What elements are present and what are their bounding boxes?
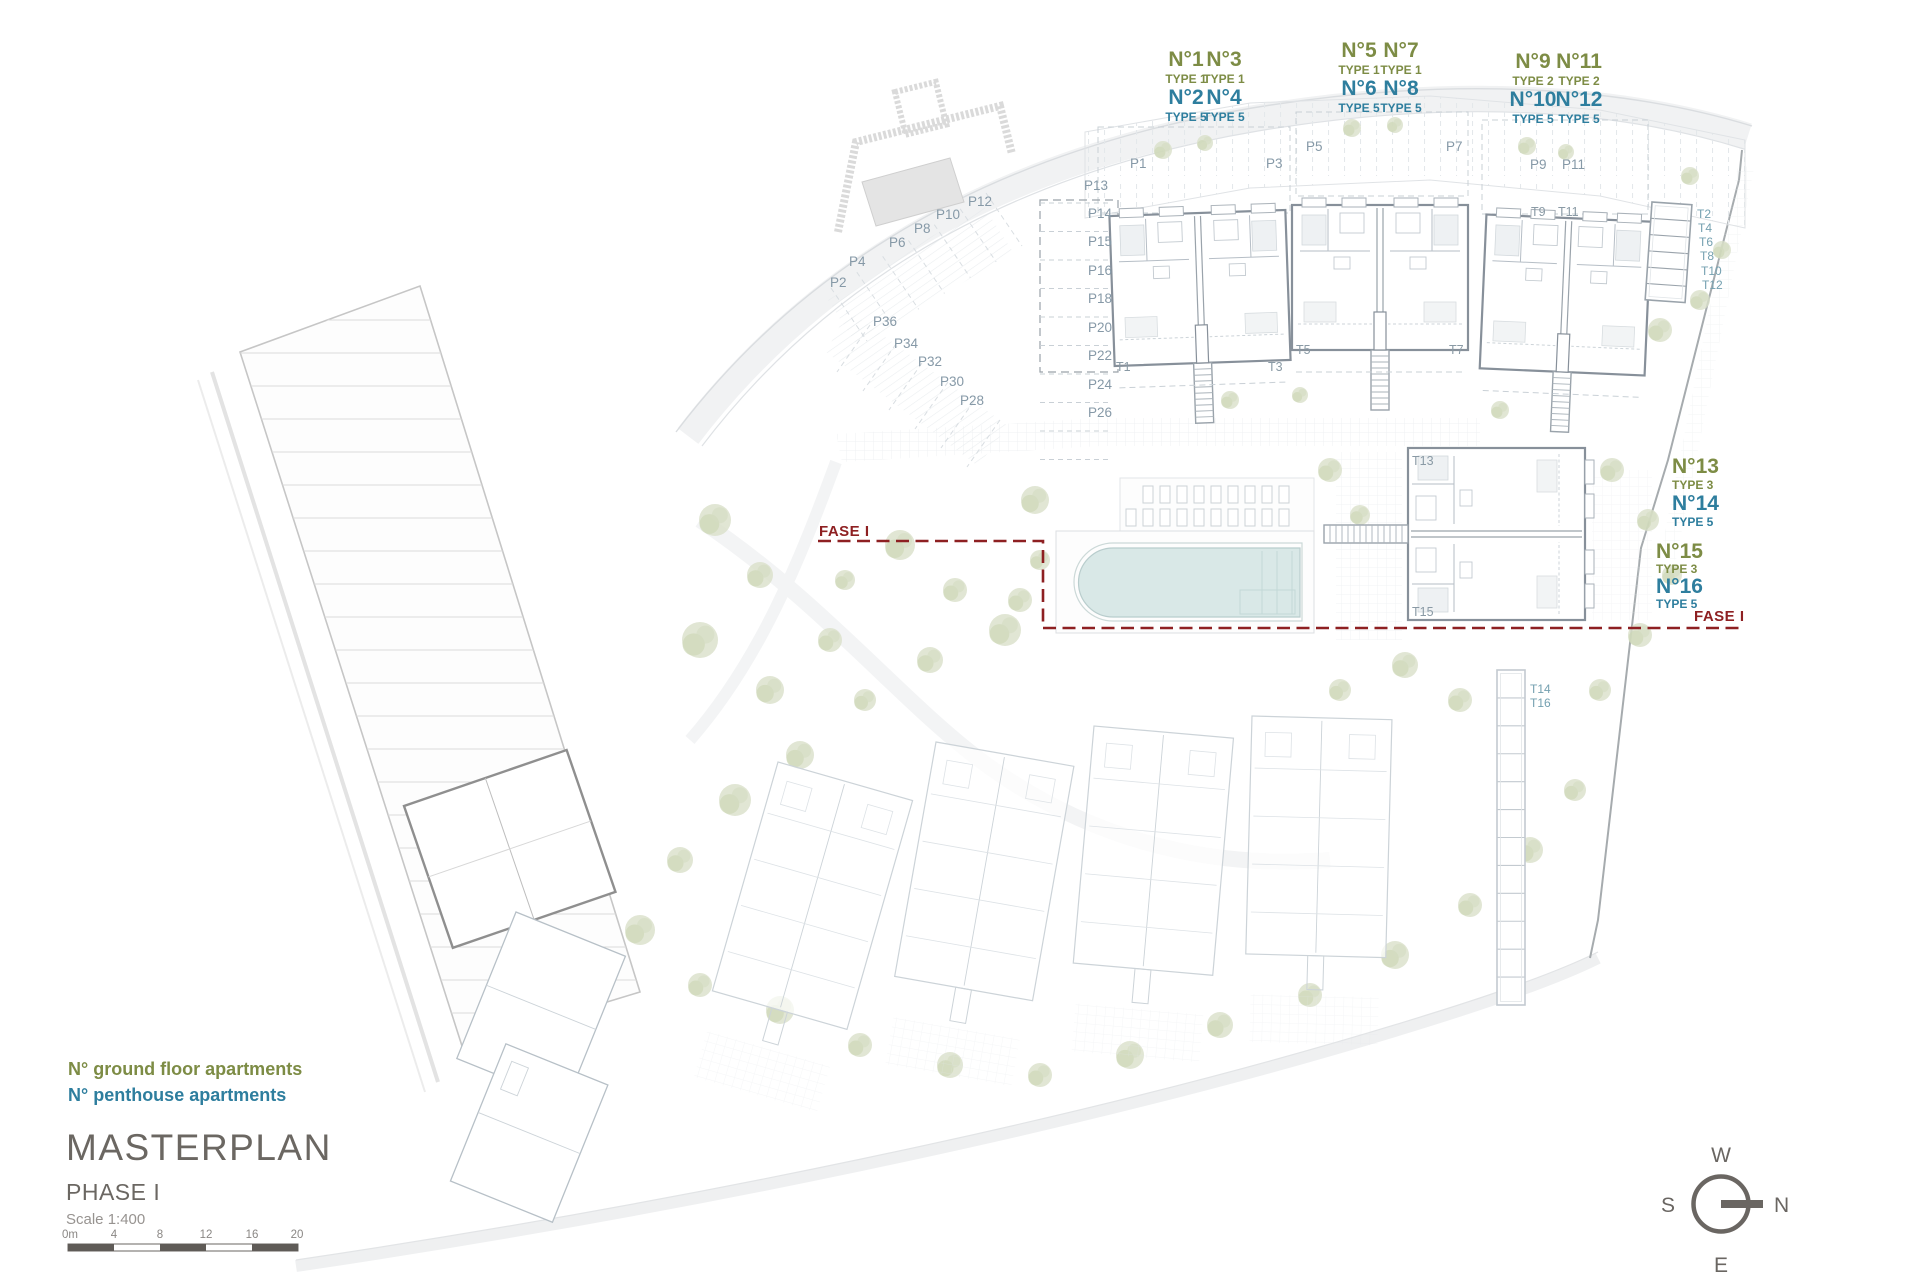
apartment-no: N°15 <box>1656 540 1703 563</box>
label-p15: P15 <box>1088 234 1112 249</box>
tree <box>1028 1063 1052 1087</box>
label-p32: P32 <box>918 354 942 369</box>
label-t6: T6 <box>1699 235 1713 249</box>
tree <box>1681 167 1699 185</box>
label-t14: T14 <box>1530 682 1551 696</box>
sun-lounger <box>1160 509 1170 526</box>
label-p20: P20 <box>1088 320 1112 335</box>
apartment-type: TYPE 2 <box>1512 74 1554 88</box>
sun-lounger <box>1245 509 1255 526</box>
pool-area <box>1056 478 1314 633</box>
label-t12: T12 <box>1702 278 1723 292</box>
legend-penthouse: N° penthouse apartments <box>68 1085 286 1105</box>
balcony <box>1251 203 1275 213</box>
scale-tick-8: 8 <box>157 1229 163 1241</box>
sun-lounger <box>1228 486 1238 503</box>
apartment-no: N°1 <box>1168 48 1204 71</box>
apartment-no: N°3 <box>1206 48 1241 71</box>
balcony <box>1583 212 1607 222</box>
label-t16: T16 <box>1530 696 1551 710</box>
label-p4: P4 <box>849 254 866 269</box>
sun-lounger <box>1160 486 1170 503</box>
apartment-no: N°6 <box>1341 77 1376 100</box>
balcony <box>1119 208 1143 218</box>
apartment-type: TYPE 1 <box>1338 63 1380 77</box>
phase1-building-2 <box>1292 198 1468 410</box>
tree <box>1600 458 1624 482</box>
existing-buildings-left <box>190 82 1012 1046</box>
label-t3: T3 <box>1268 360 1283 374</box>
label-p7: P7 <box>1446 139 1463 154</box>
scale-tick-0: 0m <box>62 1229 78 1241</box>
phase2-building <box>1243 716 1391 1046</box>
label-p13: P13 <box>1084 178 1108 193</box>
label-t10: T10 <box>1701 264 1722 278</box>
apartment-type: TYPE 3 <box>1672 478 1714 492</box>
balcony <box>1434 198 1458 207</box>
balcony <box>1585 550 1594 574</box>
tree <box>1021 486 1049 514</box>
label-p5: P5 <box>1306 139 1323 154</box>
label-p34: P34 <box>894 336 919 351</box>
tree <box>1318 458 1342 482</box>
sun-lounger <box>1262 486 1272 503</box>
tree <box>1221 391 1239 409</box>
balcony <box>1496 208 1520 218</box>
label-p26: P26 <box>1088 405 1112 420</box>
label-t7: T7 <box>1449 343 1464 357</box>
masterplan-canvas: FASE I FASE I P1 P3 P5 P7 P9 P11 P13 P14… <box>0 0 1920 1280</box>
balcony <box>1585 460 1594 484</box>
terrace-grid-right <box>1592 470 1652 620</box>
scale-bar-segment <box>252 1244 298 1251</box>
apartment-type: TYPE 5 <box>1165 110 1207 124</box>
label-p14: P14 <box>1088 206 1113 221</box>
tree <box>1564 779 1586 801</box>
phase2-building <box>688 762 912 1114</box>
stair-tower <box>1324 525 1408 543</box>
existing-small-structure <box>895 82 946 135</box>
label-t4: T4 <box>1698 221 1712 235</box>
apartment-no: N°8 <box>1383 77 1419 100</box>
sun-lounger <box>1177 486 1187 503</box>
label-p1: P1 <box>1130 156 1147 171</box>
tree <box>1387 117 1403 133</box>
label-p12: P12 <box>968 194 992 209</box>
apartment-type: TYPE 1 <box>1165 72 1207 86</box>
apartment-type: TYPE 1 <box>1380 63 1422 77</box>
label-p6: P6 <box>889 235 906 250</box>
tree <box>1637 509 1659 531</box>
tree <box>1491 401 1509 419</box>
label-p2: P2 <box>830 275 847 290</box>
label-p24: P24 <box>1088 377 1113 392</box>
scale-bar-segment <box>68 1244 114 1251</box>
tree <box>1343 119 1361 137</box>
compass-needle <box>1721 1200 1763 1208</box>
scale-tick-12: 12 <box>200 1229 213 1241</box>
sun-lounger <box>1245 486 1255 503</box>
apartment-type: TYPE 2 <box>1558 74 1600 88</box>
sun-lounger <box>1143 509 1153 526</box>
tree <box>818 628 842 652</box>
scale-bar: 0m 4 8 12 16 20 <box>62 1229 303 1251</box>
fase-label-left: FASE I <box>819 523 870 540</box>
storage-rack <box>1497 670 1525 1005</box>
sun-lounger <box>1177 509 1187 526</box>
fase-label-right: FASE I <box>1694 608 1745 625</box>
tree <box>1350 505 1370 525</box>
parking-column-zone <box>1040 200 1118 372</box>
apartment-no: N°10 <box>1510 88 1557 111</box>
tree <box>1448 688 1472 712</box>
balcony <box>1302 198 1326 207</box>
apartment-type: TYPE 5 <box>1380 101 1422 115</box>
sun-lounger <box>1143 486 1153 503</box>
tree <box>756 676 784 704</box>
tree <box>1392 652 1418 678</box>
tree <box>1030 550 1050 570</box>
tree <box>719 784 751 816</box>
apartment-labels-building-4-lower: N°15 TYPE 3 N°16 TYPE 5 <box>1656 540 1703 611</box>
apartment-no: N°9 <box>1515 50 1550 73</box>
compass: W N E S <box>1661 1144 1789 1277</box>
label-t2: T2 <box>1697 207 1711 221</box>
apartment-type: TYPE 5 <box>1558 112 1600 126</box>
tree <box>667 847 693 873</box>
tree <box>1008 588 1032 612</box>
sun-lounger <box>1279 486 1289 503</box>
apartment-type: TYPE 5 <box>1338 101 1380 115</box>
apartment-type: TYPE 5 <box>1656 597 1698 611</box>
tree <box>1648 318 1672 342</box>
page-title: MASTERPLAN <box>66 1127 332 1168</box>
apartment-type: TYPE 3 <box>1656 562 1698 576</box>
apartment-labels-building-1: N°1 N°3 TYPE 1 TYPE 1 N°2 N°4 TYPE 5 TYP… <box>1165 48 1245 124</box>
compass-west: W <box>1711 1144 1731 1167</box>
plaza-right-of-pool <box>1336 452 1402 640</box>
balcony <box>1211 205 1235 215</box>
apartment-labels-building-4-upper: N°13 TYPE 3 N°14 TYPE 5 <box>1672 455 1719 529</box>
apartment-no: N°13 <box>1672 455 1719 478</box>
balcony <box>1159 207 1183 217</box>
compass-east: E <box>1714 1254 1728 1277</box>
existing-slab-outline <box>240 286 640 1046</box>
label-t5: T5 <box>1296 343 1311 357</box>
label-p22: P22 <box>1088 348 1112 363</box>
tree <box>1458 893 1482 917</box>
label-p9: P9 <box>1530 157 1547 172</box>
tree <box>699 504 731 536</box>
tree <box>835 570 855 590</box>
phase-title: PHASE I <box>66 1179 160 1205</box>
scale-tick-16: 16 <box>246 1229 259 1241</box>
masterplan-page: FASE I FASE I P1 P3 P5 P7 P9 P11 P13 P14… <box>0 0 1920 1280</box>
phase2-building <box>879 742 1073 1087</box>
apartment-no: N°2 <box>1168 86 1203 109</box>
label-t1: T1 <box>1116 360 1131 374</box>
stair-tower <box>1371 312 1389 410</box>
tree <box>1292 387 1308 403</box>
sun-lounger <box>1194 509 1204 526</box>
tree <box>848 1033 872 1057</box>
phase1-building-1 <box>1109 203 1292 426</box>
phase1-building-3 <box>1477 207 1651 435</box>
tree <box>747 562 773 588</box>
label-p10: P10 <box>936 207 960 222</box>
compass-south: S <box>1661 1194 1675 1217</box>
tree <box>885 530 915 560</box>
tree <box>688 973 712 997</box>
tree <box>917 647 943 673</box>
label-p16: P16 <box>1088 263 1112 278</box>
tree <box>1197 135 1213 151</box>
apartment-no: N°16 <box>1656 575 1703 598</box>
pool-water <box>1079 548 1301 617</box>
apartment-labels-building-2: N°5 N°7 TYPE 1 TYPE 1 N°6 N°8 TYPE 5 TYP… <box>1338 39 1422 115</box>
sun-lounger <box>1228 509 1238 526</box>
label-t15: T15 <box>1412 605 1434 619</box>
tree <box>682 622 718 658</box>
apartment-no: N°5 <box>1341 39 1377 62</box>
balcony <box>1585 494 1594 518</box>
balcony <box>1617 213 1641 223</box>
title-block: MASTERPLAN PHASE I Scale 1:400 <box>66 1127 332 1228</box>
tree <box>1329 679 1351 701</box>
label-p3: P3 <box>1266 156 1283 171</box>
label-p8: P8 <box>914 221 931 236</box>
label-t8: T8 <box>1700 249 1714 263</box>
sun-lounger <box>1194 486 1204 503</box>
apartment-no: N°11 <box>1556 50 1602 73</box>
phase2-building <box>1066 726 1234 1063</box>
apartment-type: TYPE 5 <box>1512 112 1554 126</box>
scale-bar-segment <box>160 1244 206 1251</box>
apartment-type: TYPE 5 <box>1672 515 1714 529</box>
tree <box>1207 1012 1233 1038</box>
storage-rack <box>1645 202 1692 303</box>
balcony <box>1342 198 1366 207</box>
sun-lounger <box>1126 509 1136 526</box>
label-t9: T9 <box>1531 205 1546 219</box>
scale-label: Scale 1:400 <box>66 1211 145 1228</box>
sun-lounger <box>1211 509 1221 526</box>
sun-lounger <box>1262 509 1272 526</box>
label-p36: P36 <box>873 314 897 329</box>
legend: N° ground floor apartments N° penthouse … <box>68 1059 302 1105</box>
scale-tick-20: 20 <box>291 1229 304 1241</box>
tree <box>786 741 814 769</box>
apartment-type: TYPE 1 <box>1203 72 1245 86</box>
scale-tick-4: 4 <box>111 1229 118 1241</box>
label-p18: P18 <box>1088 291 1112 306</box>
label-t13: T13 <box>1412 454 1434 468</box>
label-p11: P11 <box>1562 157 1585 172</box>
apartment-no: N°12 <box>1556 88 1603 111</box>
tree <box>1690 290 1710 310</box>
tree <box>1589 679 1611 701</box>
apartment-no: N°14 <box>1672 492 1719 515</box>
tree <box>854 689 876 711</box>
apartment-type: TYPE 5 <box>1203 110 1245 124</box>
apartment-no: N°7 <box>1383 39 1418 62</box>
sun-lounger <box>1279 509 1289 526</box>
label-p30: P30 <box>940 374 964 389</box>
apartment-no: N°4 <box>1206 86 1242 109</box>
balcony <box>1585 584 1594 608</box>
tree <box>989 614 1021 646</box>
tree <box>943 578 967 602</box>
tree <box>625 915 655 945</box>
legend-ground-floor: N° ground floor apartments <box>68 1059 302 1079</box>
label-t11: T11 <box>1558 205 1579 219</box>
tree <box>1518 137 1536 155</box>
tree <box>1154 141 1172 159</box>
compass-north: N <box>1774 1194 1789 1217</box>
balcony <box>1394 198 1418 207</box>
label-p28: P28 <box>960 393 984 408</box>
sun-lounger <box>1211 486 1221 503</box>
tree <box>1713 241 1731 259</box>
tree <box>1628 623 1652 647</box>
